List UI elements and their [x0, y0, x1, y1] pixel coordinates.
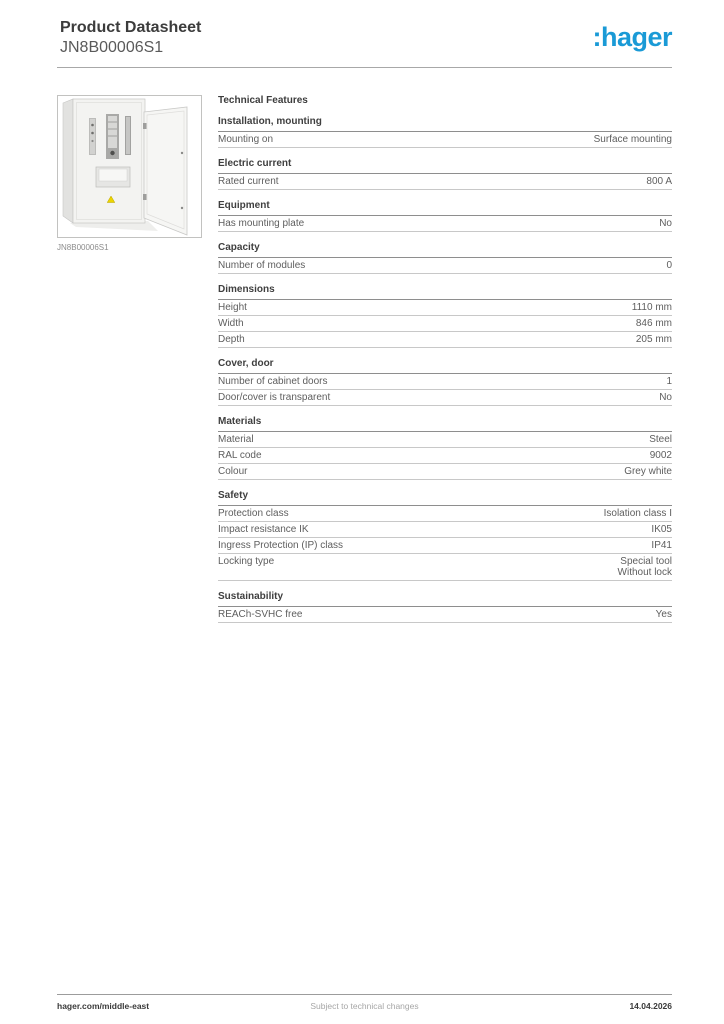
table-row: Locking typeSpecial tool Without lock [218, 554, 672, 581]
table-row: REACh-SVHC freeYes [218, 607, 672, 623]
product-image-caption: JN8B00006S1 [57, 243, 202, 252]
section-header: Installation, mounting [218, 116, 672, 132]
section-header: Electric current [218, 158, 672, 174]
table-row: RAL code9002 [218, 448, 672, 464]
table-row: Number of modules0 [218, 258, 672, 274]
row-value: Steel [649, 434, 672, 445]
row-value: IP41 [651, 540, 672, 551]
table-row: Mounting onSurface mounting [218, 132, 672, 148]
table-row: Impact resistance IKIK05 [218, 522, 672, 538]
table-section: Installation, mountingMounting onSurface… [218, 116, 672, 148]
table-row: Depth205 mm [218, 332, 672, 348]
section-header: Equipment [218, 200, 672, 216]
row-label: Width [218, 318, 244, 329]
row-label: Number of cabinet doors [218, 376, 328, 387]
table-row: Has mounting plateNo [218, 216, 672, 232]
row-label: Number of modules [218, 260, 305, 271]
row-value: 205 mm [636, 334, 672, 345]
row-label: Door/cover is transparent [218, 392, 330, 403]
section-header: Dimensions [218, 284, 672, 300]
row-value: 9002 [650, 450, 672, 461]
section-header: Sustainability [218, 591, 672, 607]
technical-features-table: Technical Features Installation, mountin… [218, 95, 672, 623]
section-header: Capacity [218, 242, 672, 258]
table-row: Ingress Protection (IP) classIP41 [218, 538, 672, 554]
table-section: Cover, doorNumber of cabinet doors1Door/… [218, 358, 672, 406]
table-row: Protection classIsolation class I [218, 506, 672, 522]
row-value: 0 [666, 260, 672, 271]
row-label: REACh-SVHC free [218, 609, 302, 620]
table-title: Technical Features [218, 95, 672, 106]
table-section: DimensionsHeight1110 mmWidth846 mmDepth2… [218, 284, 672, 348]
row-value: Isolation class I [604, 508, 672, 519]
content: JN8B00006S1 Technical Features Installat… [57, 95, 672, 623]
row-value: 800 A [646, 176, 672, 187]
cabinet-illustration [58, 96, 201, 237]
table-section: EquipmentHas mounting plateNo [218, 200, 672, 232]
row-label: RAL code [218, 450, 262, 461]
row-label: Impact resistance IK [218, 524, 309, 535]
row-value: Yes [656, 609, 672, 620]
table-sections: Installation, mountingMounting onSurface… [218, 116, 672, 623]
table-row: MaterialSteel [218, 432, 672, 448]
page-title: Product Datasheet [60, 18, 201, 38]
row-value: 1110 mm [632, 302, 672, 313]
section-header: Cover, door [218, 358, 672, 374]
row-value: Grey white [624, 466, 672, 477]
row-label: Mounting on [218, 134, 273, 145]
footer-website-link[interactable]: hager.com/middle-east [57, 1001, 262, 1011]
table-row: Height1110 mm [218, 300, 672, 316]
footer: hager.com/middle-east Subject to technic… [57, 994, 672, 1011]
row-value: Special tool Without lock [618, 556, 672, 578]
product-reference: JN8B00006S1 [60, 38, 201, 58]
table-row: ColourGrey white [218, 464, 672, 480]
table-row: Number of cabinet doors1 [218, 374, 672, 390]
header: Product Datasheet JN8B00006S1 [60, 18, 201, 58]
table-section: MaterialsMaterialSteelRAL code9002Colour… [218, 416, 672, 480]
table-section: SustainabilityREACh-SVHC freeYes [218, 591, 672, 623]
footer-disclaimer: Subject to technical changes [262, 1001, 467, 1011]
row-value: IK05 [651, 524, 672, 535]
product-image [57, 95, 202, 238]
section-header: Materials [218, 416, 672, 432]
row-label: Rated current [218, 176, 279, 187]
table-row: Rated current800 A [218, 174, 672, 190]
table-section: SafetyProtection classIsolation class II… [218, 490, 672, 581]
section-header: Safety [218, 490, 672, 506]
footer-date: 14.04.2026 [467, 1001, 672, 1011]
row-label: Protection class [218, 508, 289, 519]
row-label: Has mounting plate [218, 218, 304, 229]
row-label: Colour [218, 466, 247, 477]
row-value: No [659, 392, 672, 403]
table-row: Door/cover is transparentNo [218, 390, 672, 406]
table-section: Electric currentRated current800 A [218, 158, 672, 190]
product-image-column: JN8B00006S1 [57, 95, 202, 623]
row-value: 1 [666, 376, 672, 387]
row-value: No [659, 218, 672, 229]
row-label: Material [218, 434, 254, 445]
row-value: Surface mounting [594, 134, 672, 145]
datasheet-page: Product Datasheet JN8B00006S1 :hager [0, 0, 724, 1024]
row-label: Height [218, 302, 247, 313]
row-value: 846 mm [636, 318, 672, 329]
row-label: Depth [218, 334, 245, 345]
row-label: Locking type [218, 556, 274, 567]
table-section: CapacityNumber of modules0 [218, 242, 672, 274]
row-label: Ingress Protection (IP) class [218, 540, 343, 551]
header-divider [57, 67, 672, 68]
hager-logo: :hager [592, 22, 672, 52]
table-row: Width846 mm [218, 316, 672, 332]
